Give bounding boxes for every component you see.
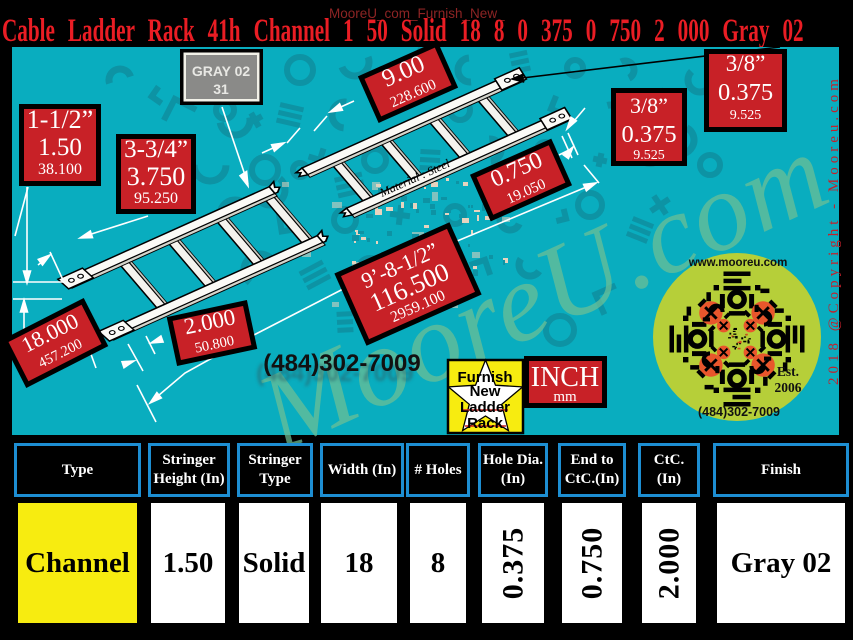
svg-text:38.100: 38.100 [38, 161, 82, 178]
svg-text:1-1/2”: 1-1/2” [27, 105, 93, 134]
svg-text:Rack: Rack [467, 415, 504, 432]
svg-text:1.50: 1.50 [38, 134, 82, 161]
svg-text:Est.: Est. [777, 364, 799, 379]
svg-text:New: New [470, 383, 501, 400]
svg-text:3/8”: 3/8” [630, 93, 668, 118]
svg-text:www.mooreu.com: www.mooreu.com [688, 257, 788, 269]
svg-text:9.525: 9.525 [633, 148, 665, 163]
svg-text:(484)302-7009: (484)302-7009 [263, 350, 420, 377]
svg-text:9.525: 9.525 [730, 108, 762, 123]
svg-text:GRAY 02: GRAY 02 [192, 63, 251, 79]
svg-text:Ladder: Ladder [460, 399, 510, 416]
svg-text:95.250: 95.250 [134, 190, 178, 207]
svg-text:31: 31 [213, 81, 229, 97]
svg-text:0.375: 0.375 [718, 79, 773, 106]
svg-text:0.375: 0.375 [621, 121, 676, 148]
svg-text:2018 @Copyright - Mooreu.com: 2018 @Copyright - Mooreu.com [826, 75, 842, 385]
svg-text:(484)302-7009: (484)302-7009 [698, 405, 780, 419]
svg-text:3/8”: 3/8” [726, 51, 766, 76]
svg-text:2006: 2006 [775, 380, 802, 395]
svg-text:mm: mm [553, 389, 577, 405]
svg-text:3-3/4”: 3-3/4” [124, 136, 188, 163]
svg-text:3.750: 3.750 [127, 162, 186, 191]
